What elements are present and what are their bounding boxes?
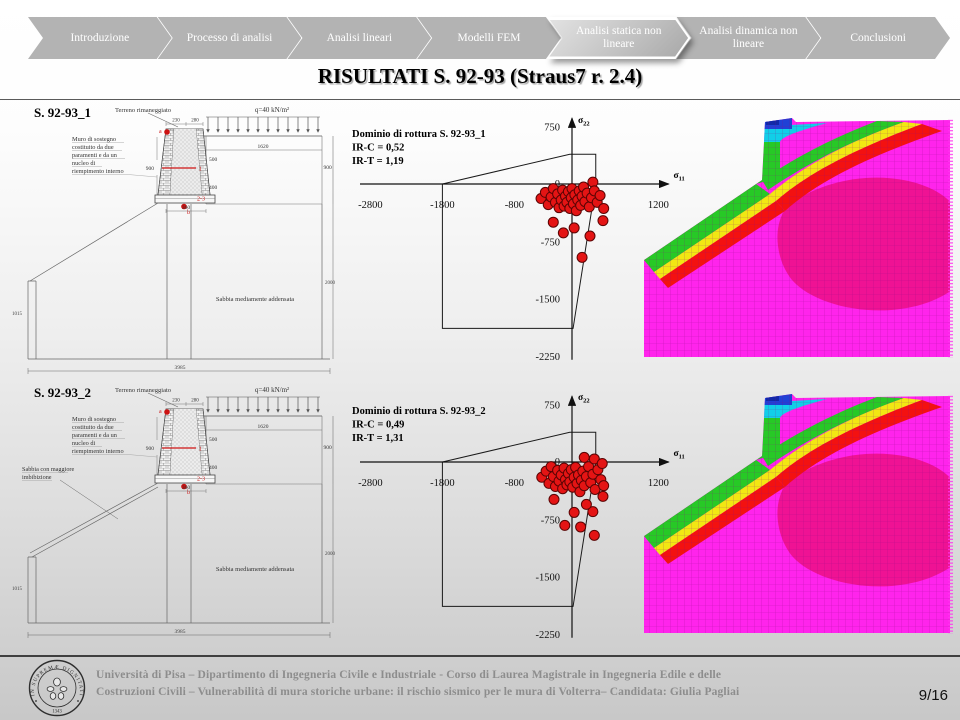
footer-line-1: Università di Pisa – Dipartimento di Ing… — [96, 667, 896, 684]
section-drawing-1: S. 92-93_1 1015 2000 3985 Sabbia mediame… — [20, 103, 350, 391]
data-point — [598, 491, 608, 501]
chart-ir-value: IR-C = 0,52 — [352, 143, 404, 154]
data-point — [598, 216, 608, 226]
data-point — [569, 223, 579, 233]
data-point — [595, 190, 605, 200]
chart-ir-value: IR-T = 1,19 — [352, 156, 404, 167]
data-point — [589, 530, 599, 540]
data-point — [548, 217, 558, 227]
dim-total-width-2: 3985 — [175, 629, 186, 635]
y-tick-label: 750 — [544, 401, 560, 412]
x-tick-label: -1800 — [430, 200, 455, 211]
footer-line-2: Costruzioni Civili – Vulnerabilità di mu… — [96, 684, 896, 701]
nav-item-label: Processo di analisi — [158, 17, 302, 59]
nav-item-label: Conclusioni — [806, 17, 950, 59]
fem-contour-plot-1 — [642, 112, 952, 368]
chart-title: Dominio di rottura S. 92-93_2 — [352, 406, 486, 417]
nav-item-6[interactable]: Conclusioni — [806, 17, 950, 59]
page-title: RISULTATI S. 92-93 (Straus7 r. 2.4) — [0, 64, 960, 89]
nav-item-label: Modelli FEM — [417, 17, 561, 59]
failure-domain-chart-2: -2800-1800-80012007500-750-1500-2250Domi… — [344, 383, 689, 659]
nav-item-5[interactable]: Analisi dinamica non lineare — [677, 17, 821, 59]
seal-year: 1343 — [52, 710, 62, 715]
nav-item-label: Analisi statica non lineare — [547, 17, 691, 59]
data-point — [599, 203, 609, 213]
y-tick-label: -750 — [541, 515, 560, 526]
svg-text:Sabbia con maggiore: Sabbia con maggiore — [22, 466, 74, 473]
y-tick-label: -1500 — [536, 295, 561, 306]
sigma22-axis-label: σ22 — [578, 116, 590, 128]
footer-divider — [0, 655, 960, 657]
x-tick-label: -800 — [505, 478, 524, 489]
breadcrumb-nav: IntroduzioneProcesso di analisiAnalisi l… — [28, 17, 950, 59]
drawing-1-name: S. 92-93_1 — [34, 105, 91, 120]
dim-right-depth-2: 2000 — [325, 552, 336, 557]
data-point — [581, 499, 591, 509]
data-point — [597, 459, 607, 469]
dim-left-depth: 1015 — [12, 312, 23, 317]
y-tick-label: -750 — [541, 237, 560, 248]
nav-item-label: Analisi dinamica non lineare — [677, 17, 821, 59]
data-point — [576, 522, 586, 532]
nav-item-0[interactable]: Introduzione — [28, 17, 172, 59]
unipi-seal-logo: IN SUPREMÆ DIGNITATIS 1343 — [26, 659, 88, 719]
soil-label-2: Sabbia mediamente addensata — [216, 566, 294, 573]
data-point — [585, 231, 595, 241]
data-point — [560, 520, 570, 530]
data-point — [549, 494, 559, 504]
y-tick-label: -2250 — [536, 352, 561, 363]
y-tick-label: 750 — [544, 123, 560, 134]
extra-soil-label: Sabbia con maggiore imbibizione — [22, 466, 74, 481]
slide: Terreno rimaneggiato q=40 kN/m² — [0, 0, 960, 720]
svg-text:imbibizione: imbibizione — [22, 474, 52, 481]
footer-caption: Università di Pisa – Dipartimento di Ing… — [96, 667, 896, 702]
fem-contour-plot-2 — [642, 388, 952, 644]
chart-ir-value: IR-T = 1,31 — [352, 433, 404, 444]
section-drawing-2: S. 92-93_2 Sabbia con maggiore imbibizio… — [20, 383, 350, 655]
x-tick-label: -2800 — [358, 478, 383, 489]
nav-item-label: Analisi lineari — [287, 17, 431, 59]
data-point — [569, 507, 579, 517]
nav-item-3[interactable]: Modelli FEM — [417, 17, 561, 59]
page-number: 9/16 — [919, 687, 948, 704]
x-tick-label: -2800 — [358, 200, 383, 211]
x-tick-label: -800 — [505, 200, 524, 211]
nav-item-1[interactable]: Processo di analisi — [158, 17, 302, 59]
data-point — [577, 252, 587, 262]
drawing-2-name: S. 92-93_2 — [34, 385, 91, 400]
soil-label-1: Sabbia mediamente addensata — [216, 296, 294, 303]
chart-title: Dominio di rottura S. 92-93_1 — [352, 129, 486, 140]
data-point — [579, 452, 589, 462]
y-tick-label: -1500 — [536, 573, 561, 584]
y-tick-label: -2250 — [536, 630, 561, 641]
dim-right-depth: 2000 — [325, 281, 336, 286]
failure-domain-chart-1: -2800-1800-80012007500-750-1500-2250Domi… — [344, 106, 689, 382]
failure-domain-polygon — [442, 154, 595, 328]
data-point — [558, 228, 568, 238]
dim-left-depth-2: 1015 — [12, 587, 23, 592]
nav-item-4[interactable]: Analisi statica non lineare — [547, 17, 691, 59]
sigma22-axis-label: σ22 — [578, 393, 590, 405]
nav-item-label: Introduzione — [28, 17, 172, 59]
x-tick-label: -1800 — [430, 478, 455, 489]
nav-item-2[interactable]: Analisi lineari — [287, 17, 431, 59]
failure-domain-polygon — [442, 432, 595, 606]
data-point — [599, 481, 609, 491]
title-divider — [0, 99, 960, 100]
dim-total-width: 3985 — [175, 365, 186, 371]
chart-ir-value: IR-C = 0,49 — [352, 420, 404, 431]
